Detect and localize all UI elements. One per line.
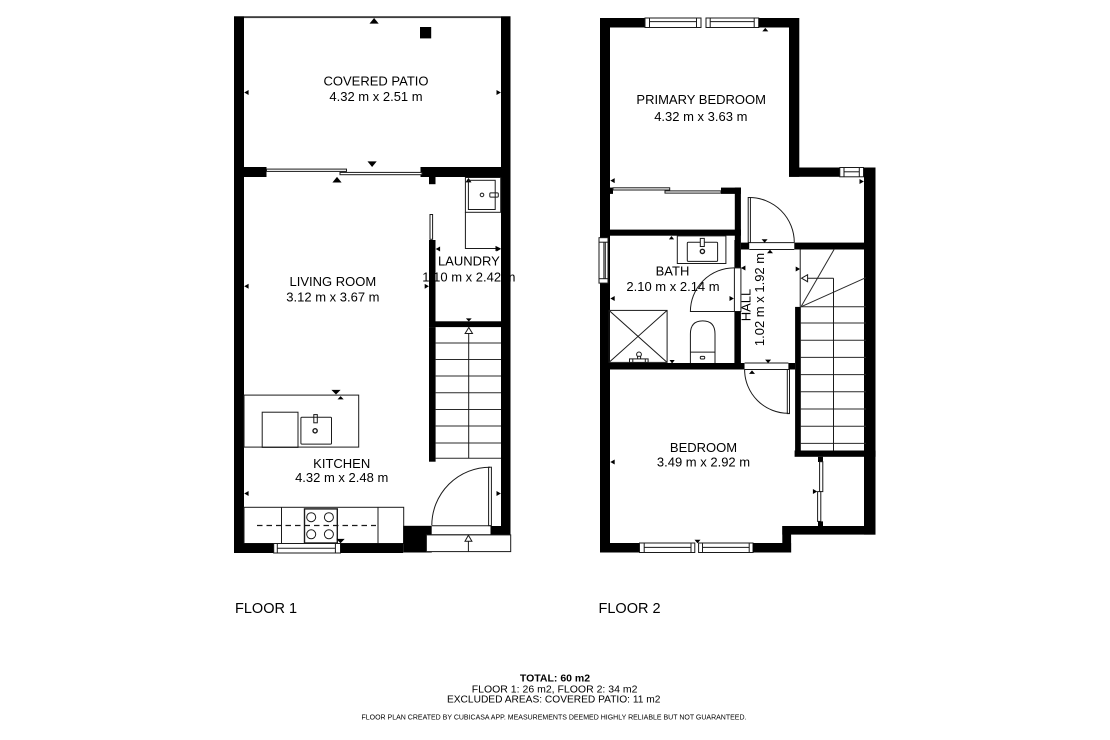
svg-text:FLOOR 1: FLOOR 1 xyxy=(235,601,297,617)
svg-text:LIVING ROOM: LIVING ROOM xyxy=(290,274,377,289)
svg-text:COVERED PATIO: COVERED PATIO xyxy=(324,74,429,89)
svg-text:FLOOR PLAN CREATED BY CUBICASA: FLOOR PLAN CREATED BY CUBICASA APP. MEAS… xyxy=(362,715,747,722)
svg-text:BEDROOM: BEDROOM xyxy=(670,440,737,455)
svg-text:4.32 m x 2.48 m: 4.32 m x 2.48 m xyxy=(295,470,388,485)
svg-text:4.32 m x 3.63 m: 4.32 m x 3.63 m xyxy=(654,109,747,124)
svg-text:BATH: BATH xyxy=(656,264,690,279)
svg-text:4.32 m x 2.51 m: 4.32 m x 2.51 m xyxy=(329,89,422,104)
svg-text:KITCHEN: KITCHEN xyxy=(313,456,370,471)
svg-text:3.49 m x 2.92 m: 3.49 m x 2.92 m xyxy=(657,455,750,470)
svg-text:3.12 m x 3.67 m: 3.12 m x 3.67 m xyxy=(286,290,379,305)
svg-text:LAUNDRY: LAUNDRY xyxy=(438,254,500,269)
svg-text:EXCLUDED AREAS: COVERED PATIO:: EXCLUDED AREAS: COVERED PATIO: 11 m2 xyxy=(447,695,661,706)
svg-text:1.02 m x 1.92 m: 1.02 m x 1.92 m xyxy=(752,253,767,346)
svg-text:PRIMARY BEDROOM: PRIMARY BEDROOM xyxy=(636,92,766,107)
svg-text:2.10 m x 2.14 m: 2.10 m x 2.14 m xyxy=(626,279,719,294)
svg-text:1.10 m x 2.42 m: 1.10 m x 2.42 m xyxy=(422,270,515,285)
svg-text:FLOOR 2: FLOOR 2 xyxy=(599,601,661,617)
